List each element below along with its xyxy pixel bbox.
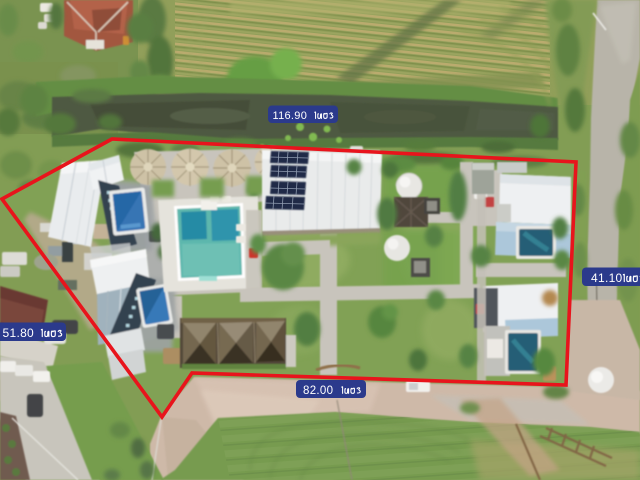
svg-text:116.90: 116.90 bbox=[273, 110, 308, 122]
svg-text:51.80: 51.80 bbox=[3, 326, 35, 340]
svg-text:41.10: 41.10 bbox=[591, 271, 623, 285]
svg-text:82.00: 82.00 bbox=[303, 385, 333, 397]
